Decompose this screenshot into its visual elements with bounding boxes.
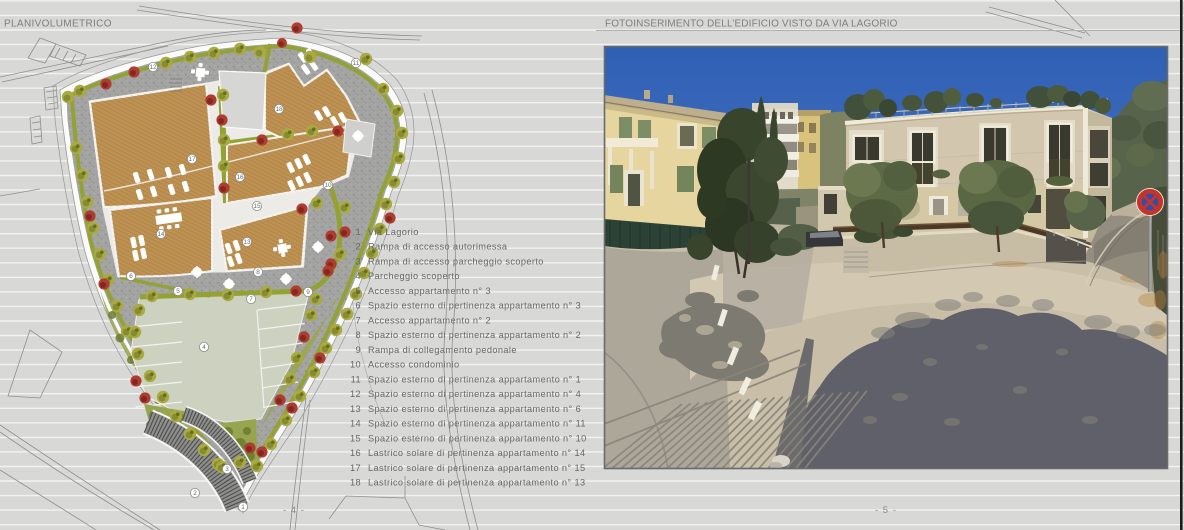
svg-text:18: 18 [350, 478, 361, 488]
svg-text:12: 12 [149, 64, 157, 71]
svg-text:8: 8 [355, 330, 361, 340]
svg-text:3: 3 [225, 466, 229, 473]
svg-text:1: 1 [241, 504, 245, 511]
svg-text:Parcheggio scoperto: Parcheggio scoperto [368, 271, 460, 281]
svg-text:Spazio esterno di pertinenza a: Spazio esterno di pertinenza appartament… [368, 419, 586, 429]
svg-text:Rampa di accesso parcheggio sc: Rampa di accesso parcheggio scoperto [368, 256, 544, 266]
svg-text:2: 2 [193, 490, 197, 497]
svg-text:16: 16 [236, 174, 244, 181]
svg-text:14: 14 [350, 419, 361, 429]
svg-text:Spazio esterno di pertinenza a: Spazio esterno di pertinenza appartament… [368, 404, 581, 414]
svg-text:6: 6 [129, 273, 133, 280]
svg-text:Spazio esterno di pertinenza a: Spazio esterno di pertinenza appartament… [368, 389, 581, 399]
svg-text:4: 4 [355, 271, 361, 281]
svg-text:- 4 -: - 4 - [283, 505, 305, 516]
svg-text:16: 16 [350, 448, 361, 458]
svg-text:Lastrico solare di pertinenza: Lastrico solare di pertinenza appartamen… [368, 478, 585, 488]
svg-text:Via Lagorio: Via Lagorio [368, 227, 419, 237]
svg-text:Lastrico solare di pertinenza: Lastrico solare di pertinenza appartamen… [368, 463, 585, 473]
svg-text:Lastrico solare di pertinenza: Lastrico solare di pertinenza appartamen… [368, 448, 585, 458]
svg-text:18: 18 [275, 106, 283, 113]
svg-text:9: 9 [355, 345, 361, 355]
svg-text:5: 5 [355, 286, 361, 296]
svg-text:8: 8 [256, 269, 260, 276]
svg-text:PLANIVOLUMETRICO: PLANIVOLUMETRICO [4, 19, 112, 30]
svg-text:9: 9 [306, 289, 310, 296]
svg-text:Rampa di collegamento pedonale: Rampa di collegamento pedonale [368, 345, 517, 355]
svg-text:FOTOINSERIMENTO DELL’EDIFICIO: FOTOINSERIMENTO DELL’EDIFICIO VISTO DA V… [605, 19, 898, 30]
svg-text:Accesso appartamento n° 2: Accesso appartamento n° 2 [368, 315, 491, 325]
svg-text:6: 6 [355, 301, 361, 311]
svg-text:Rampa di accesso autorimessa: Rampa di accesso autorimessa [368, 242, 508, 252]
svg-text:4: 4 [202, 344, 206, 351]
svg-text:1: 1 [355, 227, 361, 237]
svg-text:13: 13 [350, 404, 361, 414]
svg-text:Spazio esterno di pertinenza a: Spazio esterno di pertinenza appartament… [368, 374, 581, 384]
svg-text:Accesso condominio: Accesso condominio [368, 360, 459, 370]
svg-text:17: 17 [350, 463, 361, 473]
svg-text:11: 11 [353, 60, 360, 67]
svg-text:3: 3 [355, 256, 361, 266]
svg-text:17: 17 [188, 156, 196, 163]
svg-text:14: 14 [157, 231, 165, 238]
svg-text:13: 13 [243, 239, 251, 246]
svg-text:15: 15 [253, 203, 261, 210]
svg-text:Spazio esterno di pertinenza a: Spazio esterno di pertinenza appartament… [368, 301, 581, 311]
svg-text:- 5 -: - 5 - [875, 505, 897, 516]
svg-text:5: 5 [176, 288, 180, 295]
svg-text:Spazio esterno di pertinenza a: Spazio esterno di pertinenza appartament… [368, 433, 587, 443]
svg-text:2: 2 [355, 242, 361, 252]
svg-text:Spazio esterno di pertinenza a: Spazio esterno di pertinenza appartament… [368, 330, 581, 340]
svg-text:Accesso appartamento n° 3: Accesso appartamento n° 3 [368, 286, 491, 296]
svg-text:10: 10 [350, 360, 361, 370]
svg-text:12: 12 [350, 389, 361, 399]
svg-text:10: 10 [324, 182, 332, 189]
svg-text:7: 7 [249, 296, 253, 303]
svg-text:7: 7 [355, 315, 361, 325]
svg-text:11: 11 [351, 374, 361, 384]
svg-text:15: 15 [350, 433, 361, 443]
